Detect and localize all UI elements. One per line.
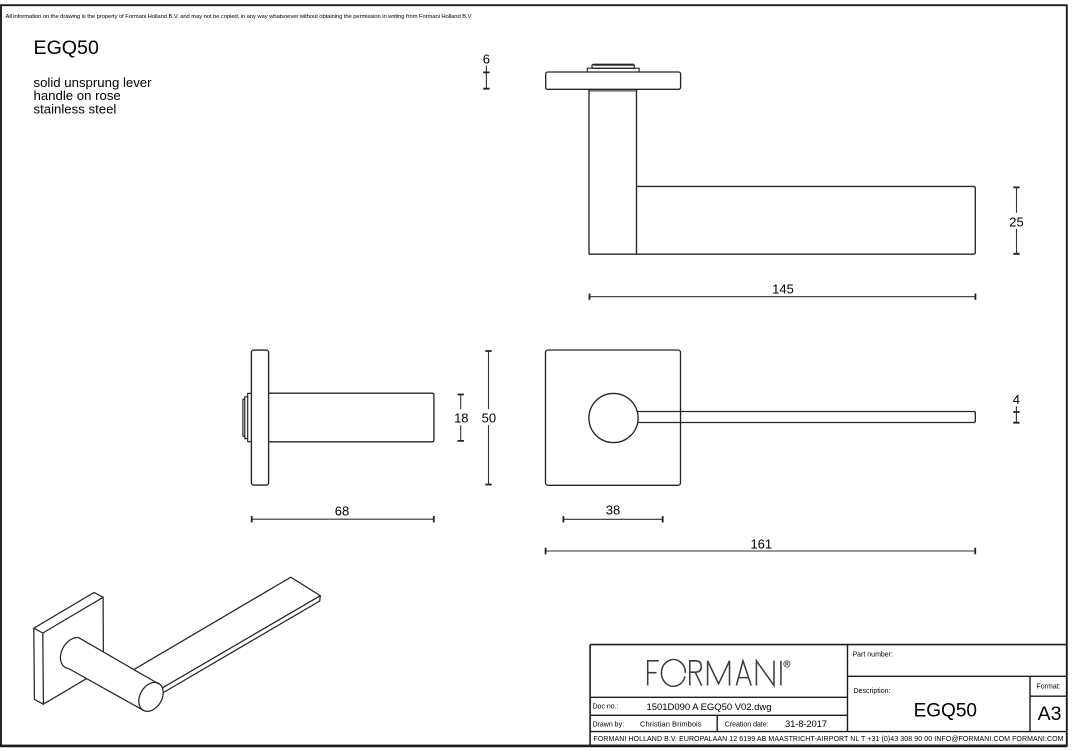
svg-text:A3: A3 <box>1038 703 1062 725</box>
svg-text:1501D090 A EGQ50 V02.dwg: 1501D090 A EGQ50 V02.dwg <box>647 702 772 713</box>
svg-text:All information on the drawing: All information on the drawing is the pr… <box>6 14 472 20</box>
svg-text:145: 145 <box>772 281 794 296</box>
svg-text:Drawn by:: Drawn by: <box>593 722 625 729</box>
svg-text:50: 50 <box>482 411 496 426</box>
svg-text:stainless steel: stainless steel <box>34 101 117 116</box>
svg-text:EGQ50: EGQ50 <box>914 701 977 722</box>
svg-text:Doc no.:: Doc no.: <box>593 704 619 711</box>
svg-text:68: 68 <box>335 504 349 519</box>
svg-text:Description:: Description: <box>854 688 891 695</box>
svg-text:Part number:: Part number: <box>853 652 894 659</box>
svg-text:4: 4 <box>1013 392 1020 407</box>
svg-text:31-8-2017: 31-8-2017 <box>785 719 827 730</box>
svg-text:Christian Brimbois: Christian Brimbois <box>640 720 702 729</box>
svg-text:6: 6 <box>483 51 490 66</box>
svg-text:FORMANI HOLLAND B.V. EUROPALA: FORMANI HOLLAND B.V. EUROPALAAN 12 6199 … <box>594 736 1064 743</box>
svg-text:EGQ50: EGQ50 <box>34 37 99 59</box>
svg-text:Format:: Format: <box>1037 684 1061 691</box>
svg-text:25: 25 <box>1009 214 1023 229</box>
svg-text:Creation date:: Creation date: <box>725 722 769 729</box>
svg-text:161: 161 <box>750 536 772 551</box>
svg-text:38: 38 <box>606 503 620 518</box>
svg-text:18: 18 <box>454 411 468 426</box>
